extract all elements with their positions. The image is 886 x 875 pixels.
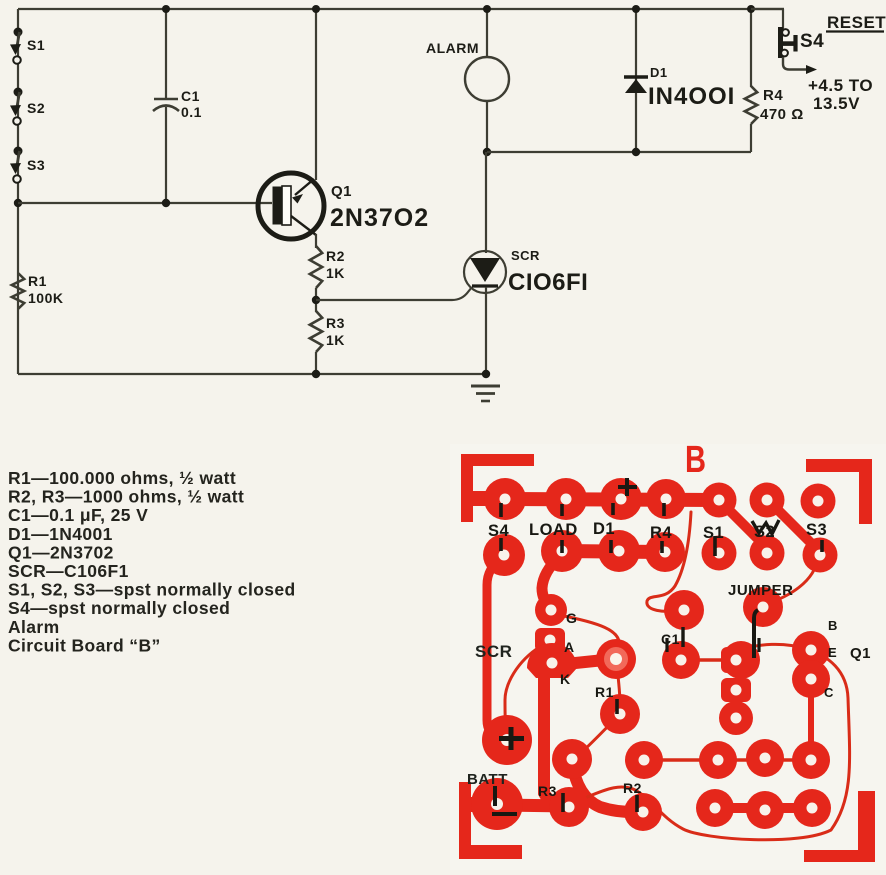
svg-text:S4: S4 xyxy=(488,522,510,540)
svg-text:R3: R3 xyxy=(326,315,345,331)
svg-text:S3: S3 xyxy=(806,521,827,539)
svg-text:S2: S2 xyxy=(27,100,45,116)
svg-text:SCR—C106F1: SCR—C106F1 xyxy=(8,561,129,581)
svg-text:1K: 1K xyxy=(326,265,345,281)
svg-text:B: B xyxy=(828,618,838,633)
svg-text:Circuit Board “B”: Circuit Board “B” xyxy=(8,635,161,655)
svg-text:100K: 100K xyxy=(28,290,63,306)
svg-text:R1: R1 xyxy=(595,684,614,700)
svg-text:CIO6FI: CIO6FI xyxy=(508,269,588,296)
svg-text:SCR: SCR xyxy=(475,642,512,661)
svg-text:IN4OOI: IN4OOI xyxy=(648,83,735,110)
svg-text:C1: C1 xyxy=(181,88,200,104)
svg-text:Alarm: Alarm xyxy=(8,617,60,637)
svg-text:RESET: RESET xyxy=(827,13,886,32)
svg-text:ALARM: ALARM xyxy=(426,40,479,56)
svg-text:R2: R2 xyxy=(326,248,345,264)
svg-text:R1—100.000 ohms, ½ watt: R1—100.000 ohms, ½ watt xyxy=(8,468,236,488)
svg-text:LOAD: LOAD xyxy=(529,521,578,539)
svg-text:R1: R1 xyxy=(28,273,47,289)
svg-text:Q1—2N3702: Q1—2N3702 xyxy=(8,542,114,562)
svg-text:470 Ω: 470 Ω xyxy=(760,106,804,123)
svg-text:0.1: 0.1 xyxy=(181,104,202,120)
svg-text:S2: S2 xyxy=(754,523,775,541)
svg-text:S1: S1 xyxy=(27,37,45,53)
svg-text:1K: 1K xyxy=(326,332,345,348)
svg-text:D1: D1 xyxy=(593,520,615,538)
svg-text:K: K xyxy=(560,671,571,687)
svg-text:JUMPER: JUMPER xyxy=(728,582,794,599)
svg-text:S1, S2, S3—spst normally close: S1, S2, S3—spst normally closed xyxy=(8,580,296,600)
svg-text:R4: R4 xyxy=(763,87,783,104)
svg-text:A: A xyxy=(564,639,575,655)
svg-text:G: G xyxy=(566,610,577,626)
svg-text:Q1: Q1 xyxy=(850,645,871,662)
svg-text:13.5V: 13.5V xyxy=(813,94,860,113)
svg-text:BATT: BATT xyxy=(467,771,508,788)
svg-text:R2, R3—1000 ohms, ½ watt: R2, R3—1000 ohms, ½ watt xyxy=(8,487,244,507)
svg-text:S4—spst normally closed: S4—spst normally closed xyxy=(8,598,230,618)
svg-text:R4: R4 xyxy=(650,524,672,542)
svg-text:E: E xyxy=(828,645,837,660)
svg-text:R3: R3 xyxy=(538,783,557,799)
svg-text:S1: S1 xyxy=(703,524,724,542)
svg-text:+4.5 TO: +4.5 TO xyxy=(808,76,873,95)
svg-text:C: C xyxy=(824,685,834,700)
svg-text:R2: R2 xyxy=(623,780,642,796)
svg-text:SCR: SCR xyxy=(511,248,540,263)
svg-text:S4: S4 xyxy=(800,31,824,52)
svg-text:B: B xyxy=(685,439,706,481)
svg-text:2N37O2: 2N37O2 xyxy=(330,204,429,232)
svg-text:S3: S3 xyxy=(27,157,45,173)
svg-text:D1: D1 xyxy=(650,65,668,80)
svg-text:C1—0.1 μF, 25 V: C1—0.1 μF, 25 V xyxy=(8,505,148,525)
svg-text:C1: C1 xyxy=(661,631,680,647)
svg-text:Q1: Q1 xyxy=(331,183,352,200)
svg-text:D1—1N4001: D1—1N4001 xyxy=(8,524,113,544)
